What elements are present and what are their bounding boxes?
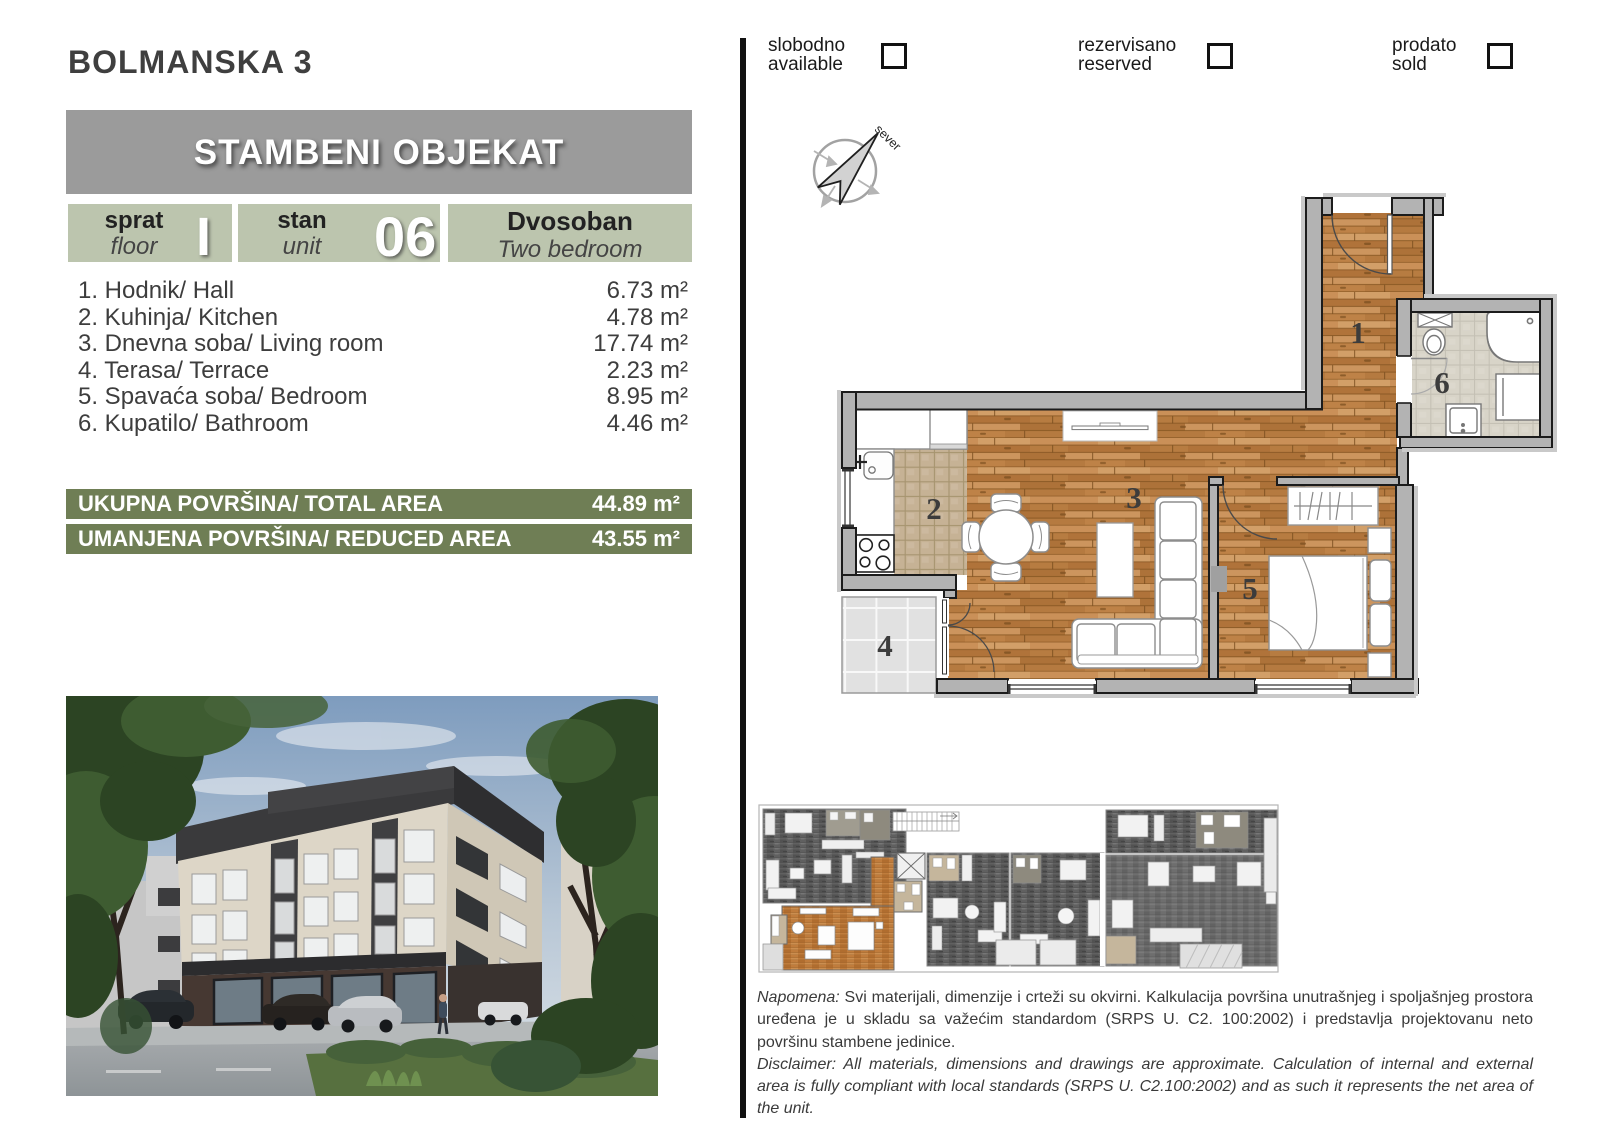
- svg-text:4: 4: [877, 628, 893, 663]
- svg-text:3: 3: [1126, 480, 1142, 515]
- svg-text:6: 6: [1434, 365, 1450, 400]
- svg-text:2: 2: [926, 491, 942, 526]
- svg-text:5: 5: [1242, 571, 1258, 606]
- svg-text:1: 1: [1350, 315, 1366, 350]
- svg-text:sever: sever: [872, 122, 904, 153]
